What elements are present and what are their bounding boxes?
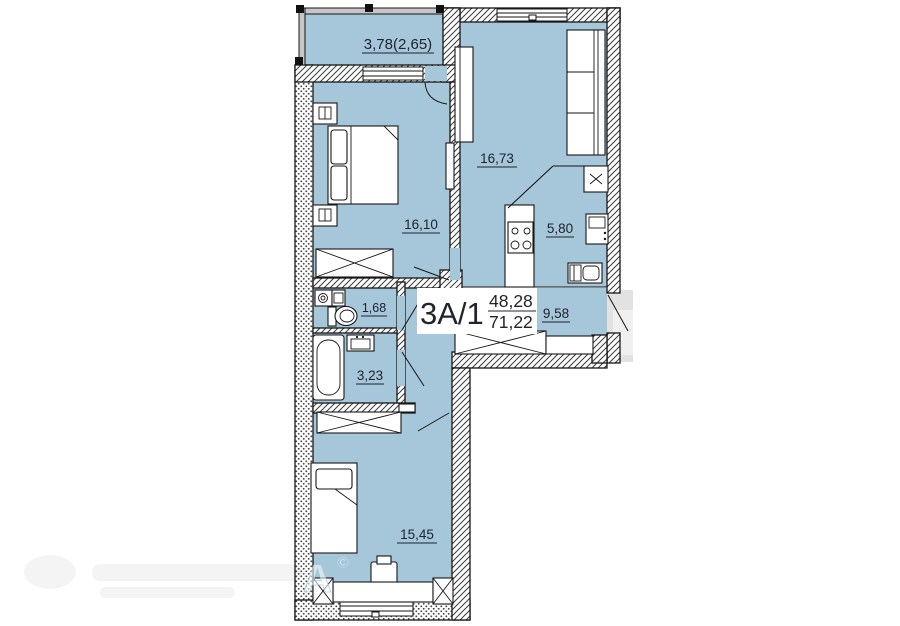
bedroom-bottom-area-label: 15,45	[400, 527, 434, 542]
watermark-letter: А	[303, 557, 332, 601]
balcony-post	[365, 4, 373, 12]
nightstand	[313, 205, 337, 226]
opening-wc-door	[397, 296, 405, 330]
bedroom-top-area-label: 16,10	[404, 217, 438, 232]
window-sill-cabinet	[333, 582, 433, 602]
wardrobe-bedroom-top	[316, 249, 393, 277]
wall-right-upper	[607, 8, 620, 293]
unit-area-upper: 48,28	[489, 291, 533, 311]
opening-bedroom-top-door	[450, 248, 460, 280]
unit-name: 3А/1	[420, 296, 484, 331]
living-room-area-label: 16,73	[480, 151, 514, 166]
door-leaf-bedroom-top	[446, 143, 454, 189]
balcony-post	[296, 5, 304, 13]
window-living	[497, 9, 567, 21]
watermark-text-line	[100, 587, 235, 598]
sofa	[567, 30, 605, 155]
kitchen-sink	[568, 263, 602, 283]
stove	[508, 222, 533, 253]
pier-right	[433, 578, 453, 604]
wardrobe-bedroom-bottom	[317, 412, 401, 433]
bath-sink	[347, 335, 374, 351]
unit-label-box: 3А/1 48,28 71,22	[417, 288, 537, 334]
unit-area-lower: 71,22	[489, 312, 533, 332]
living-wardrobe	[455, 47, 473, 142]
balcony-wall-left	[299, 8, 305, 65]
oven	[586, 214, 608, 244]
double-bed	[328, 126, 398, 204]
wall-bedroom-top-bottom	[313, 278, 460, 288]
bedroom-bottom-door-leaf	[399, 404, 415, 412]
window-bedroom-balcony	[363, 67, 423, 80]
window-bedroom-bottom	[340, 602, 413, 617]
opening-balcony-door	[425, 66, 447, 81]
toilet	[328, 307, 357, 327]
nightstand	[313, 103, 337, 124]
wall-bedroom-bottom-right	[452, 368, 470, 620]
fridge	[584, 166, 608, 192]
bathroom-area-label: 3,23	[357, 368, 383, 383]
wall-entry-side	[592, 335, 607, 363]
kitchen-area-label: 5,80	[547, 221, 573, 236]
floor-plan-page: 3,78(2,65) 16,73 16,10 5,80 1,68 9,58 3,…	[0, 0, 900, 626]
watermark-logo	[24, 555, 76, 589]
wall-right-below-door	[607, 333, 620, 363]
balcony-post	[436, 5, 444, 13]
floor-plan-drawing: 3,78(2,65) 16,73 16,10 5,80 1,68 9,58 3,…	[0, 0, 900, 626]
watermark-copyright: ©	[337, 555, 349, 572]
wall-wc-bath-divider	[313, 328, 397, 333]
balcony-post	[295, 57, 303, 65]
single-bed	[311, 463, 357, 553]
wall-left	[295, 65, 313, 620]
watermark-text-line	[92, 564, 302, 581]
balcony-area-label: 3,78(2,65)	[364, 36, 432, 53]
bathtub	[313, 335, 344, 400]
wc-sink	[332, 290, 345, 306]
hallway-area-label: 9,58	[543, 306, 569, 321]
wc-area-label: 1,68	[362, 301, 386, 315]
washing-machine	[315, 290, 332, 306]
